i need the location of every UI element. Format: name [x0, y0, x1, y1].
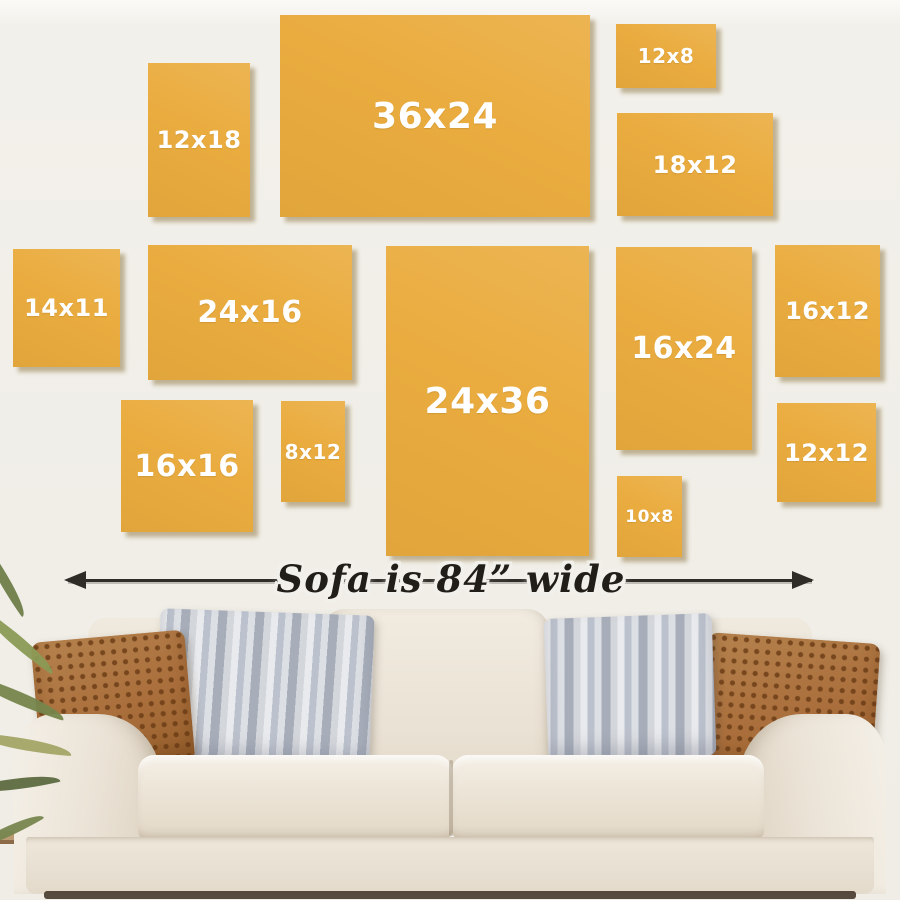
frame-18x12: 18x12	[617, 113, 773, 216]
plant-leaf	[0, 546, 33, 617]
frame-16x24: 16x24	[616, 247, 752, 450]
frame-label: 12x12	[784, 439, 869, 467]
frame-label: 8x12	[285, 440, 342, 464]
sofa-seat-cushion-left	[138, 755, 452, 839]
frame-label: 16x16	[134, 449, 239, 484]
frame-label: 24x36	[425, 381, 551, 422]
frame-label: 12x18	[157, 126, 242, 154]
frame-label: 16x12	[785, 297, 870, 325]
frame-8x12: 8x12	[281, 401, 345, 502]
frame-12x8: 12x8	[616, 24, 716, 88]
frame-label: 12x8	[638, 44, 695, 68]
frame-label: 36x24	[372, 96, 498, 137]
frame-14x11: 14x11	[13, 249, 120, 367]
frame-label: 18x12	[653, 151, 738, 179]
arrowhead-left-icon	[64, 571, 86, 589]
arrowhead-right-icon	[792, 571, 814, 589]
sofa-base-skirt	[26, 837, 874, 894]
frame-label: 14x11	[24, 294, 109, 322]
sofa-floor-shadow	[44, 891, 856, 899]
frame-10x8: 10x8	[617, 476, 682, 557]
frame-label: 10x8	[625, 507, 673, 527]
wall-background: 12x18 36x24 12x8 18x12 14x11 24x16 24x36…	[0, 0, 900, 900]
pillow-gray-right	[544, 613, 717, 761]
frame-16x12: 16x12	[775, 245, 880, 377]
frame-12x18: 12x18	[148, 63, 250, 217]
frame-24x16: 24x16	[148, 245, 352, 380]
frame-label: 16x24	[631, 331, 736, 366]
frame-24x36: 24x36	[386, 246, 589, 556]
frame-36x24: 36x24	[280, 15, 590, 217]
frame-16x16: 16x16	[121, 400, 253, 532]
sofa-seat-cushion-right	[452, 755, 764, 839]
frame-label: 24x16	[197, 295, 302, 330]
frame-12x12: 12x12	[777, 403, 876, 502]
sofa-width-caption: Sofa is 84” wide	[277, 557, 626, 601]
sofa-seat-seam	[449, 760, 453, 836]
